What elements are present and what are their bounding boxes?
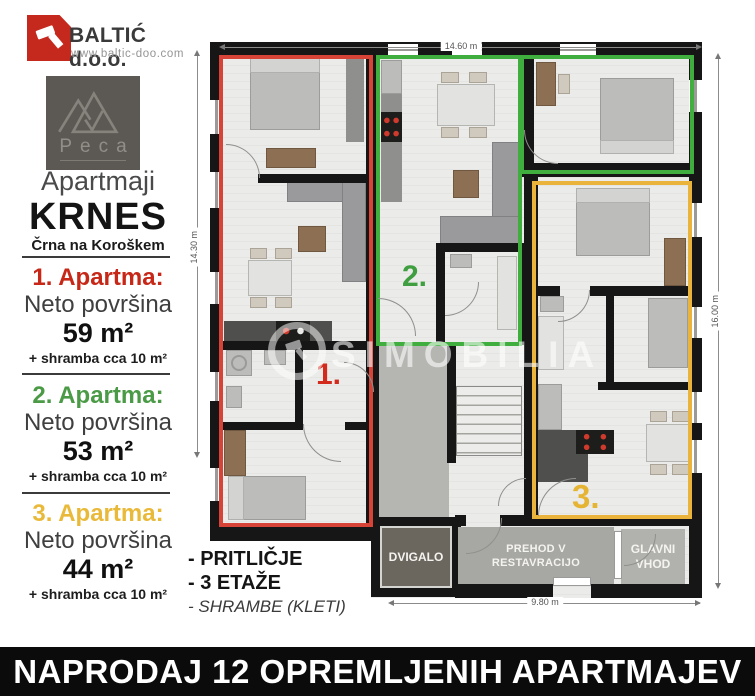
apartment-2-number: 2.: [402, 260, 427, 294]
apartment-3-number: 3.: [572, 478, 600, 516]
wall: [591, 584, 702, 598]
arrow-icon: [696, 44, 702, 50]
door-leaf: [614, 531, 622, 579]
arrow-icon: [194, 50, 200, 56]
dimension-bottom: 9.80 m: [527, 597, 563, 607]
arrow-icon: [388, 600, 394, 606]
wall: [210, 527, 378, 541]
arrow-icon: [194, 452, 200, 458]
arrow-icon: [715, 583, 721, 589]
floor-plan: DVIGALO PREHOD V RESTAVRACIJO GLAVNI VHO…: [0, 0, 755, 645]
dimension-right: 16.00 m: [710, 292, 720, 331]
watermark-text: SIMOBILIA: [331, 334, 603, 376]
dimension-left: 14.30 m: [189, 228, 199, 267]
bottom-banner: NAPRODAJ 12 OPREMLJENIH APARTMAJEV: [0, 647, 755, 696]
arrow-icon: [695, 600, 701, 606]
passage-label-2: RESTAVRACIJO: [492, 556, 580, 570]
door-leaf: [553, 577, 591, 586]
passage-label-1: PREHOD V: [506, 542, 566, 556]
stairs: [456, 386, 522, 456]
dimension-top: 14.60 m: [441, 41, 482, 51]
elevator-label: DVIGALO: [389, 550, 444, 564]
apartment-1-outline: [219, 55, 373, 527]
arrow-icon: [219, 44, 225, 50]
watermark-logo-icon: [268, 322, 326, 380]
elevator-box: DVIGALO: [380, 526, 452, 588]
arrow-icon: [715, 53, 721, 59]
wall: [455, 584, 553, 598]
